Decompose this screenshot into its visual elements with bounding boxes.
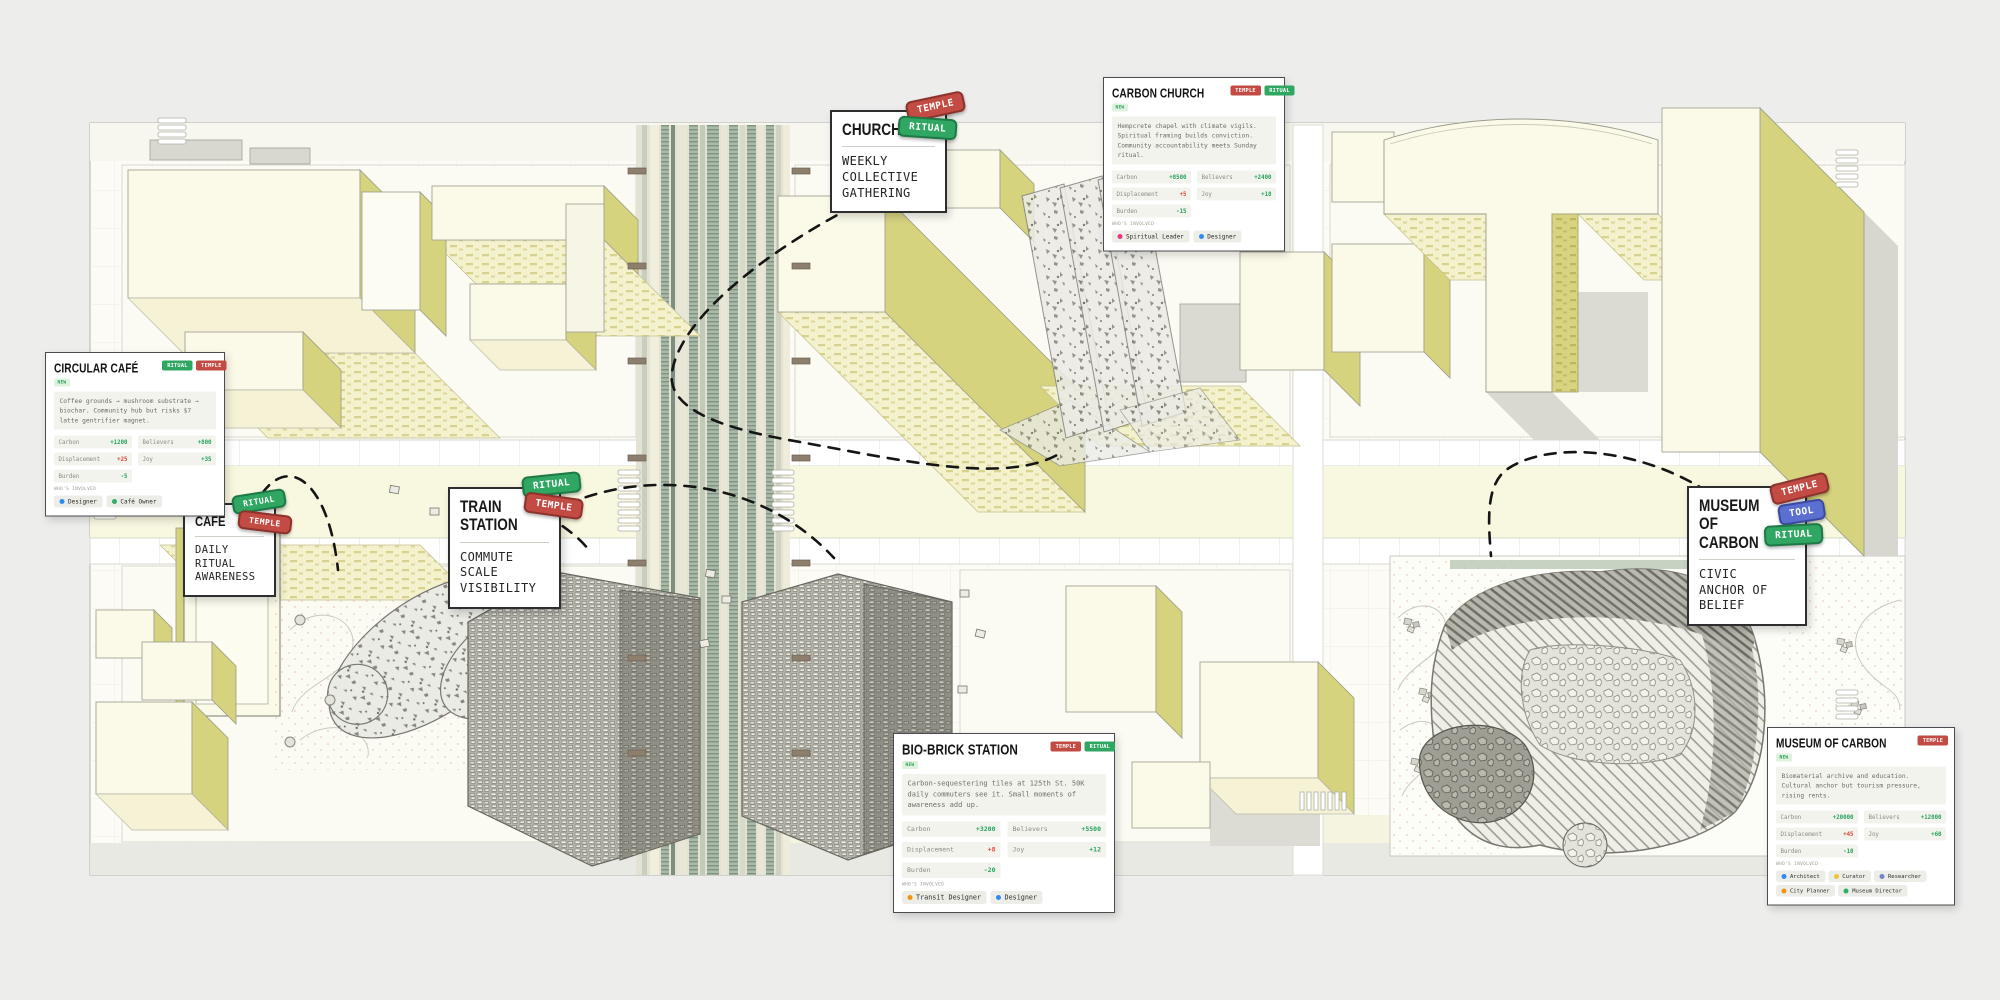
stat-joy: Joy+12 bbox=[1008, 842, 1107, 858]
person-dot bbox=[1782, 874, 1787, 879]
label-card-train-station[interactable]: RITUAL TEMPLE TRAIN STATION COMMUTE SCAL… bbox=[448, 487, 561, 609]
stats-grid: Carbon+8500 Believers+2400 Displacement+… bbox=[1112, 170, 1276, 217]
person-chip-transit-designer: Transit Designer bbox=[902, 891, 987, 904]
urban-plan-canvas: TEMPLE RITUAL CHURCH WEEKLY COLLECTIVE G… bbox=[0, 0, 2000, 1000]
involved-label: WHO'S INVOLVED bbox=[54, 487, 216, 492]
tag-ritual: RITUAL bbox=[897, 115, 958, 140]
tag-temple: TEMPLE bbox=[523, 491, 585, 520]
stat-burden: Burden-15 bbox=[1112, 204, 1191, 217]
stat-believers: Believers+800 bbox=[138, 436, 216, 449]
stat-displacement: Displacement+8 bbox=[902, 842, 1001, 858]
person-dot bbox=[1879, 874, 1884, 879]
label-card-church[interactable]: TEMPLE RITUAL CHURCH WEEKLY COLLECTIVE G… bbox=[830, 110, 947, 213]
stat-burden: Burden-10 bbox=[1776, 845, 1858, 858]
tag-temple: TEMPLE bbox=[196, 361, 226, 371]
person-chip-designer: Designer bbox=[1193, 230, 1241, 242]
person-dot bbox=[1782, 888, 1787, 893]
person-chip-museum-director: Museum Director bbox=[1838, 885, 1907, 897]
person-dot bbox=[60, 499, 65, 504]
new-badge: NEW bbox=[1112, 104, 1128, 112]
label-card-museum[interactable]: TEMPLE TOOL RITUAL MUSEUM OF CARBON CIVI… bbox=[1687, 486, 1807, 626]
person-chip-designer: Designer bbox=[54, 496, 102, 508]
involved-label: WHO'S INVOLVED bbox=[902, 882, 1106, 887]
person-dot bbox=[908, 895, 913, 900]
tag-temple: TEMPLE bbox=[1918, 736, 1948, 746]
card-circular-cafe[interactable]: CIRCULAR CAFÉ RITUAL TEMPLE NEW Coffee g… bbox=[45, 352, 225, 517]
card-title: CIRCULAR CAFÉ bbox=[54, 361, 138, 377]
stat-joy: Joy+35 bbox=[138, 453, 216, 466]
involved-label: WHO'S INVOLVED bbox=[1112, 221, 1276, 226]
stat-carbon: Carbon+3200 bbox=[902, 822, 1001, 838]
stat-joy: Joy+60 bbox=[1864, 828, 1946, 841]
person-chip-researcher: Researcher bbox=[1874, 871, 1927, 883]
card-title: MUSEUM OF CARBON bbox=[1776, 736, 1887, 752]
person-chip-cafe-owner: Café Owner bbox=[106, 496, 162, 508]
card-description: Carbon-sequestering tiles at 125th St. 5… bbox=[902, 774, 1106, 816]
tag-ritual: RITUAL bbox=[162, 361, 192, 371]
stat-burden: Burden-20 bbox=[902, 863, 1001, 879]
tag-temple: TEMPLE bbox=[237, 510, 293, 535]
person-dot bbox=[112, 499, 117, 504]
label-body: COMMUTE SCALE VISIBILITY bbox=[460, 542, 549, 597]
card-description: Hempcrete chapel with climate vigils. Sp… bbox=[1112, 117, 1276, 165]
tag-ritual: RITUAL bbox=[1085, 742, 1115, 752]
card-title: BIO-BRICK STATION bbox=[902, 742, 1018, 759]
stat-displacement: Displacement+45 bbox=[1776, 828, 1858, 841]
label-title: TRAIN STATION bbox=[460, 498, 531, 535]
person-dot bbox=[996, 895, 1001, 900]
label-card-cafe[interactable]: RITUAL TEMPLE CAFE DAILY RITUAL AWARENES… bbox=[183, 503, 276, 597]
label-title: MUSEUM OF CARBON bbox=[1699, 497, 1776, 552]
new-badge: NEW bbox=[1776, 754, 1792, 762]
person-chip-spiritual-leader: Spiritual Leader bbox=[1112, 230, 1189, 242]
tag-ritual: RITUAL bbox=[1763, 523, 1823, 547]
stats-grid: Carbon+1200 Believers+800 Displacement+2… bbox=[54, 436, 216, 483]
person-chip-architect: Architect bbox=[1776, 871, 1825, 883]
tag-temple: TEMPLE bbox=[1230, 86, 1260, 96]
card-description: Coffee grounds → mushroom substrate → bi… bbox=[54, 392, 216, 430]
stat-joy: Joy+18 bbox=[1197, 187, 1276, 200]
new-badge: NEW bbox=[54, 379, 70, 387]
label-body: WEEKLY COLLECTIVE GATHERING bbox=[842, 146, 935, 201]
card-bio-brick-station[interactable]: BIO-BRICK STATION TEMPLE RITUAL NEW Carb… bbox=[893, 733, 1115, 913]
stat-carbon: Carbon+8500 bbox=[1112, 170, 1191, 183]
person-chip-city-planner: City Planner bbox=[1776, 885, 1835, 897]
card-carbon-church[interactable]: CARBON CHURCH TEMPLE RITUAL NEW Hempcret… bbox=[1103, 77, 1285, 251]
label-body: CIVIC ANCHOR OF BELIEF bbox=[1699, 559, 1795, 614]
stat-displacement: Displacement+25 bbox=[54, 453, 132, 466]
card-museum-of-carbon[interactable]: MUSEUM OF CARBON TEMPLE NEW Biomaterial … bbox=[1767, 727, 1955, 906]
person-chip-designer: Designer bbox=[991, 891, 1043, 904]
stat-displacement: Displacement+5 bbox=[1112, 187, 1191, 200]
person-dot bbox=[1834, 874, 1839, 879]
stat-believers: Believers+2400 bbox=[1197, 170, 1276, 183]
person-chip-curator: Curator bbox=[1828, 871, 1871, 883]
person-dot bbox=[1844, 888, 1849, 893]
person-dot bbox=[1199, 234, 1204, 239]
stat-believers: Believers+5500 bbox=[1008, 822, 1107, 838]
tag-ritual: RITUAL bbox=[1264, 86, 1294, 96]
stats-grid: Carbon+20000 Believers+12000 Displacemen… bbox=[1776, 811, 1946, 858]
stat-burden: Burden-5 bbox=[54, 470, 132, 483]
stat-carbon: Carbon+20000 bbox=[1776, 811, 1858, 824]
card-title: CARBON CHURCH bbox=[1112, 86, 1204, 102]
tag-temple: TEMPLE bbox=[1051, 742, 1081, 752]
card-description: Biomaterial archive and education. Cultu… bbox=[1776, 767, 1946, 805]
new-badge: NEW bbox=[902, 761, 918, 769]
stat-carbon: Carbon+1200 bbox=[54, 436, 132, 449]
involved-label: WHO'S INVOLVED bbox=[1776, 862, 1946, 867]
stat-believers: Believers+12000 bbox=[1864, 811, 1946, 824]
person-dot bbox=[1118, 234, 1123, 239]
label-body: DAILY RITUAL AWARENESS bbox=[195, 536, 264, 585]
stats-grid: Carbon+3200 Believers+5500 Displacement+… bbox=[902, 822, 1106, 879]
